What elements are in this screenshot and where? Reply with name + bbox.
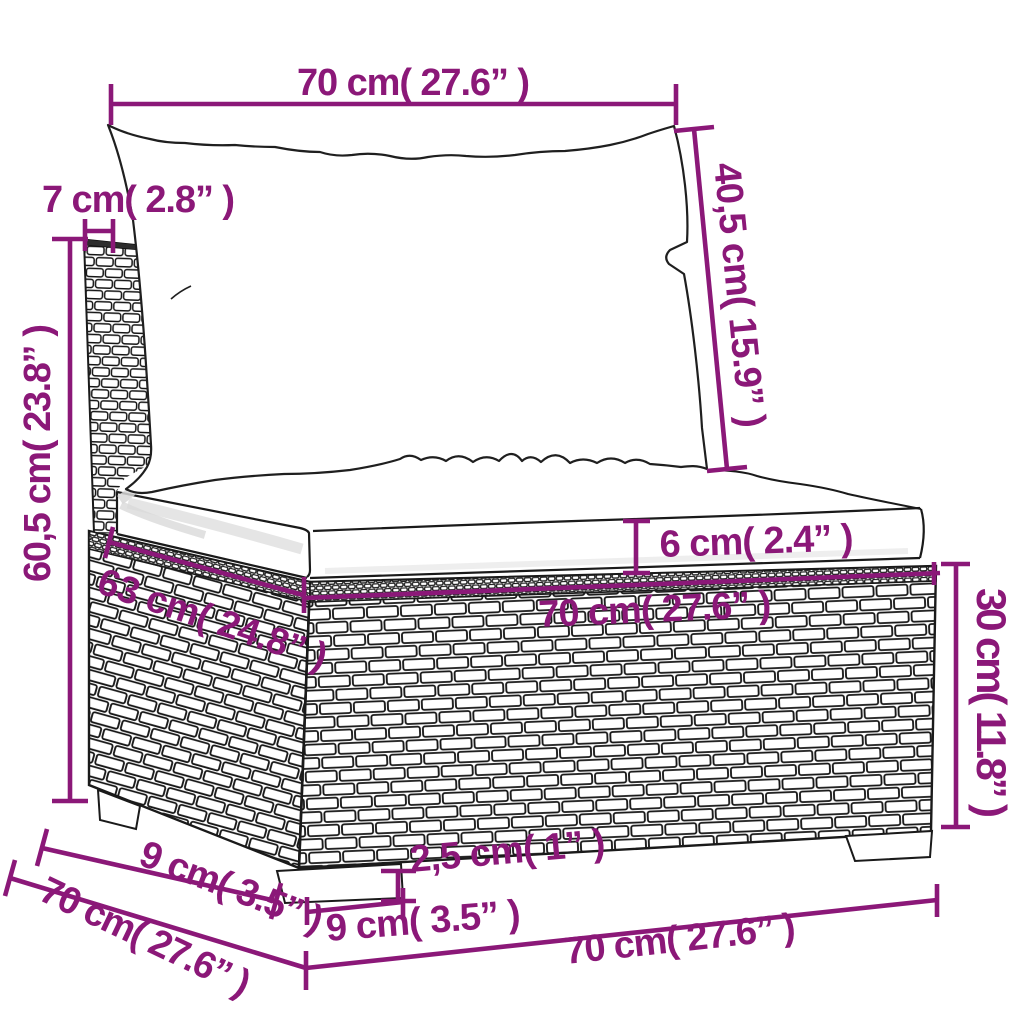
svg-text:70 cm( 27.6” ): 70 cm( 27.6” ) xyxy=(297,62,530,104)
svg-text:6 cm( 2.4” ): 6 cm( 2.4” ) xyxy=(659,517,854,566)
svg-text:30 cm( 11.8” ): 30 cm( 11.8” ) xyxy=(968,588,1015,818)
svg-text:7 cm( 2.8” ): 7 cm( 2.8” ) xyxy=(42,179,235,221)
svg-text:60,5 cm( 23.8” ): 60,5 cm( 23.8” ) xyxy=(17,324,59,582)
